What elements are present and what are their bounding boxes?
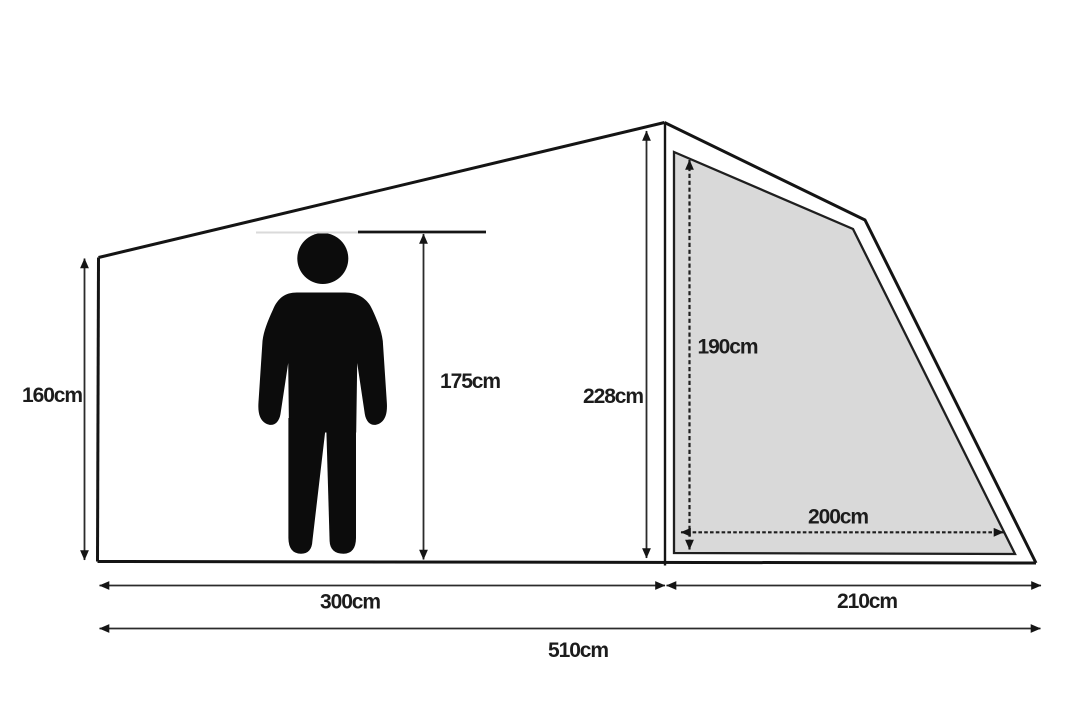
svg-text:510cm: 510cm (548, 639, 608, 662)
svg-text:160cm: 160cm (22, 384, 82, 407)
svg-text:200cm: 200cm (808, 506, 868, 529)
svg-text:175cm: 175cm (440, 370, 500, 393)
svg-text:228cm: 228cm (583, 385, 643, 408)
svg-text:300cm: 300cm (320, 591, 380, 614)
svg-text:210cm: 210cm (837, 590, 897, 613)
svg-text:190cm: 190cm (698, 336, 758, 359)
